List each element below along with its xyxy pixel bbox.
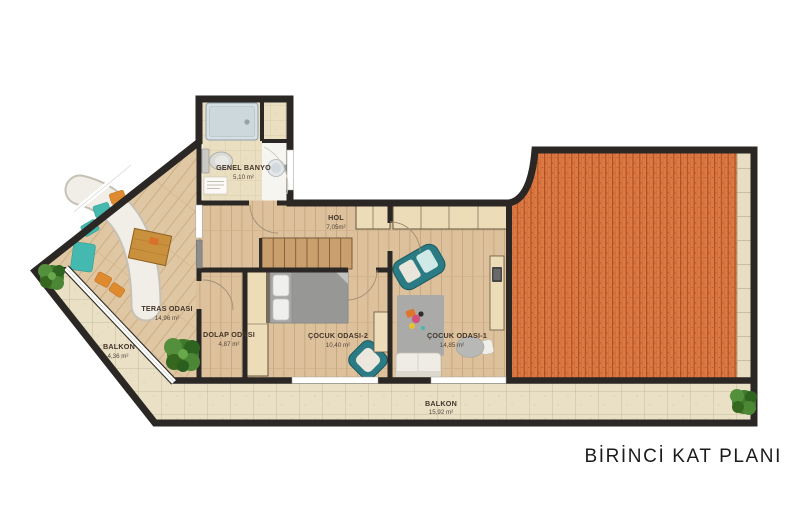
label-genel-banyo: GENEL BANYO [216, 163, 271, 172]
plant-bottom-right [730, 389, 757, 415]
label-balkon-alt: BALKON [425, 399, 457, 408]
label-teras-odasi: TERAS ODASI [141, 304, 192, 313]
daybed-room1 [396, 353, 441, 377]
shower-icon [206, 103, 258, 140]
stairs [259, 238, 352, 269]
teras-door-leaf [196, 240, 202, 268]
hall-closet [356, 205, 390, 229]
label-cocuk-odasi-2: ÇOCUK ODASI-2 [308, 331, 368, 340]
play-rug-room1 [397, 295, 444, 356]
side-table-room2 [374, 312, 389, 352]
label-cocuk-odasi-1: ÇOCUK ODASI-1 [427, 331, 487, 340]
teras-wall-window [196, 205, 202, 238]
room1-window [431, 377, 506, 383]
wardrobe-room1 [393, 206, 507, 229]
area-dolap-odasi: 4,87 m² [219, 341, 240, 348]
floor-plan-drawing: GENEL BANYO 5,10 m² HOL 7,05m² TERAS ODA… [0, 0, 797, 531]
desk-room1 [490, 256, 504, 330]
room2-window [292, 377, 378, 383]
roof-tiles [511, 151, 737, 379]
area-balkon-alt: 15,92 m² [429, 409, 453, 416]
plant-teras [164, 338, 200, 372]
bed-room2 [266, 270, 348, 323]
plant-balcony-corner [38, 264, 65, 290]
roof-area [511, 151, 751, 379]
area-cocuk-odasi-2: 10,40 m² [326, 342, 350, 349]
area-balkon-sol: 4,36 m² [108, 353, 129, 360]
area-cocuk-odasi-1: 14,85 m² [440, 342, 464, 349]
page-title: BİRİNCİ KAT PLANI [584, 446, 782, 467]
area-genel-banyo: 5,10 m² [233, 174, 254, 181]
note-box [204, 177, 227, 194]
floor-plan-page: GENEL BANYO 5,10 m² HOL 7,05m² TERAS ODA… [0, 0, 797, 531]
roof-edge-strip [737, 151, 751, 379]
dolap-odasi-floor [196, 268, 247, 382]
label-hol: HOL [328, 213, 344, 222]
wardrobe-room2 [247, 272, 268, 376]
area-teras-odasi: 14,96 m² [155, 315, 179, 322]
label-balkon-sol: BALKON [103, 342, 135, 351]
area-hol: 7,05m² [326, 224, 345, 231]
label-dolap-odasi: DOLAP ODASI [203, 330, 255, 339]
